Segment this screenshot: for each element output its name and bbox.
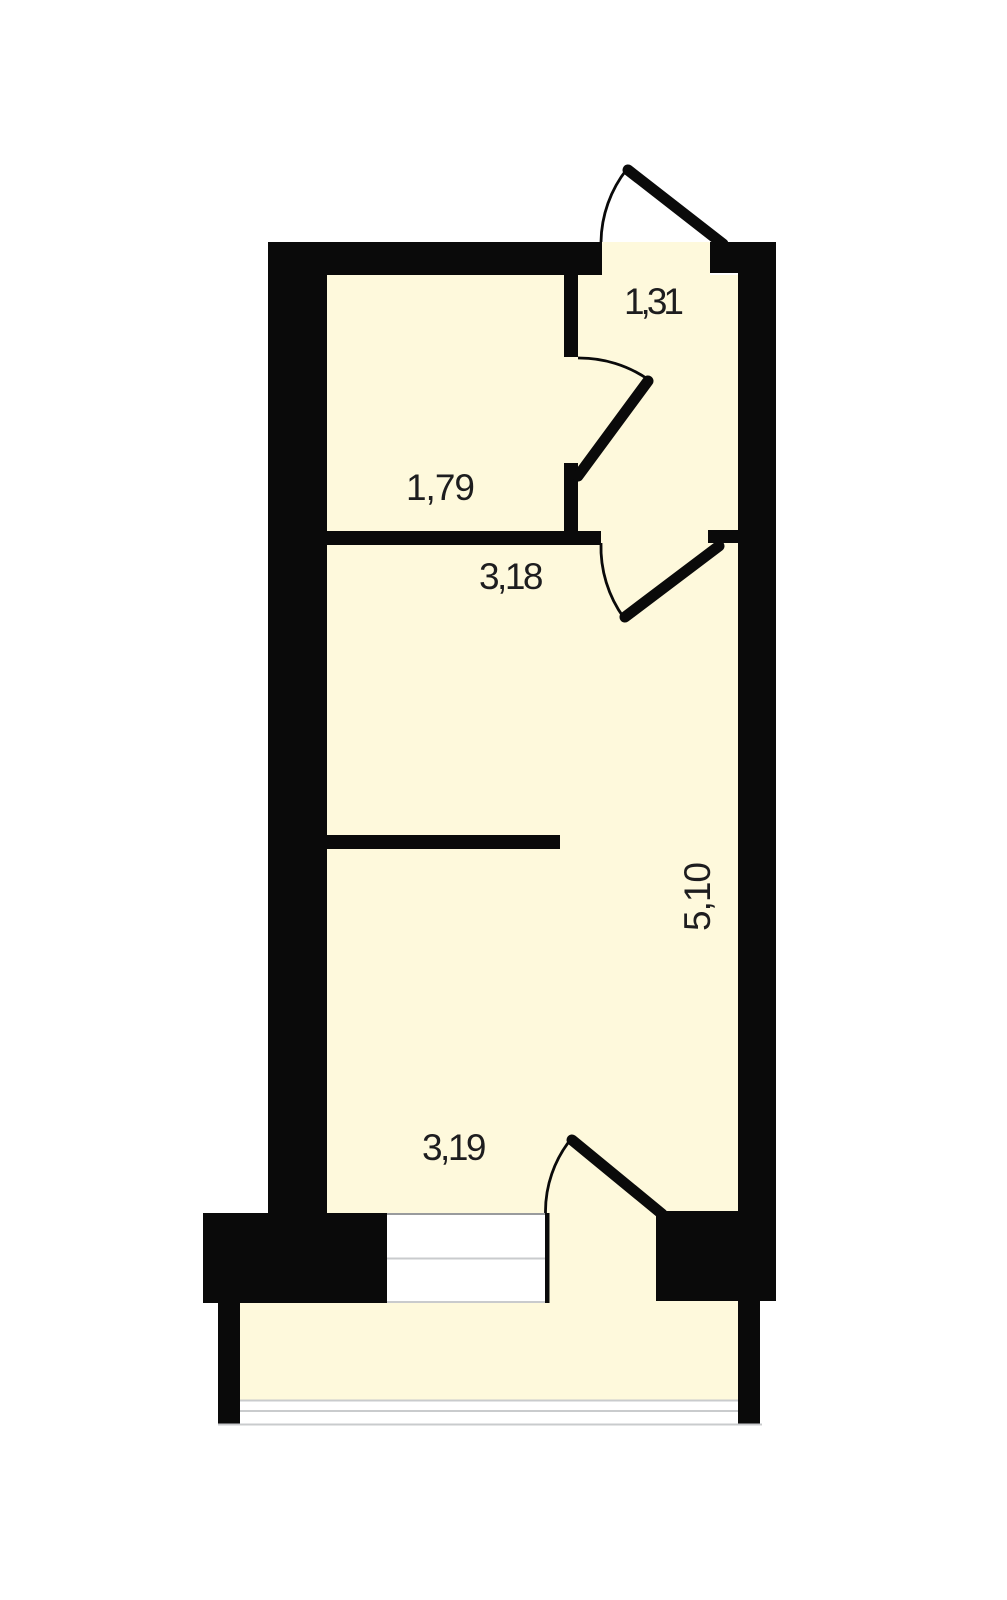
svg-text:1,31: 1,31: [624, 281, 682, 322]
svg-text:1,79: 1,79: [406, 467, 474, 508]
svg-text:3,18: 3,18: [479, 556, 542, 597]
svg-text:3,19: 3,19: [422, 1127, 485, 1168]
svg-text:5,10: 5,10: [677, 863, 718, 931]
